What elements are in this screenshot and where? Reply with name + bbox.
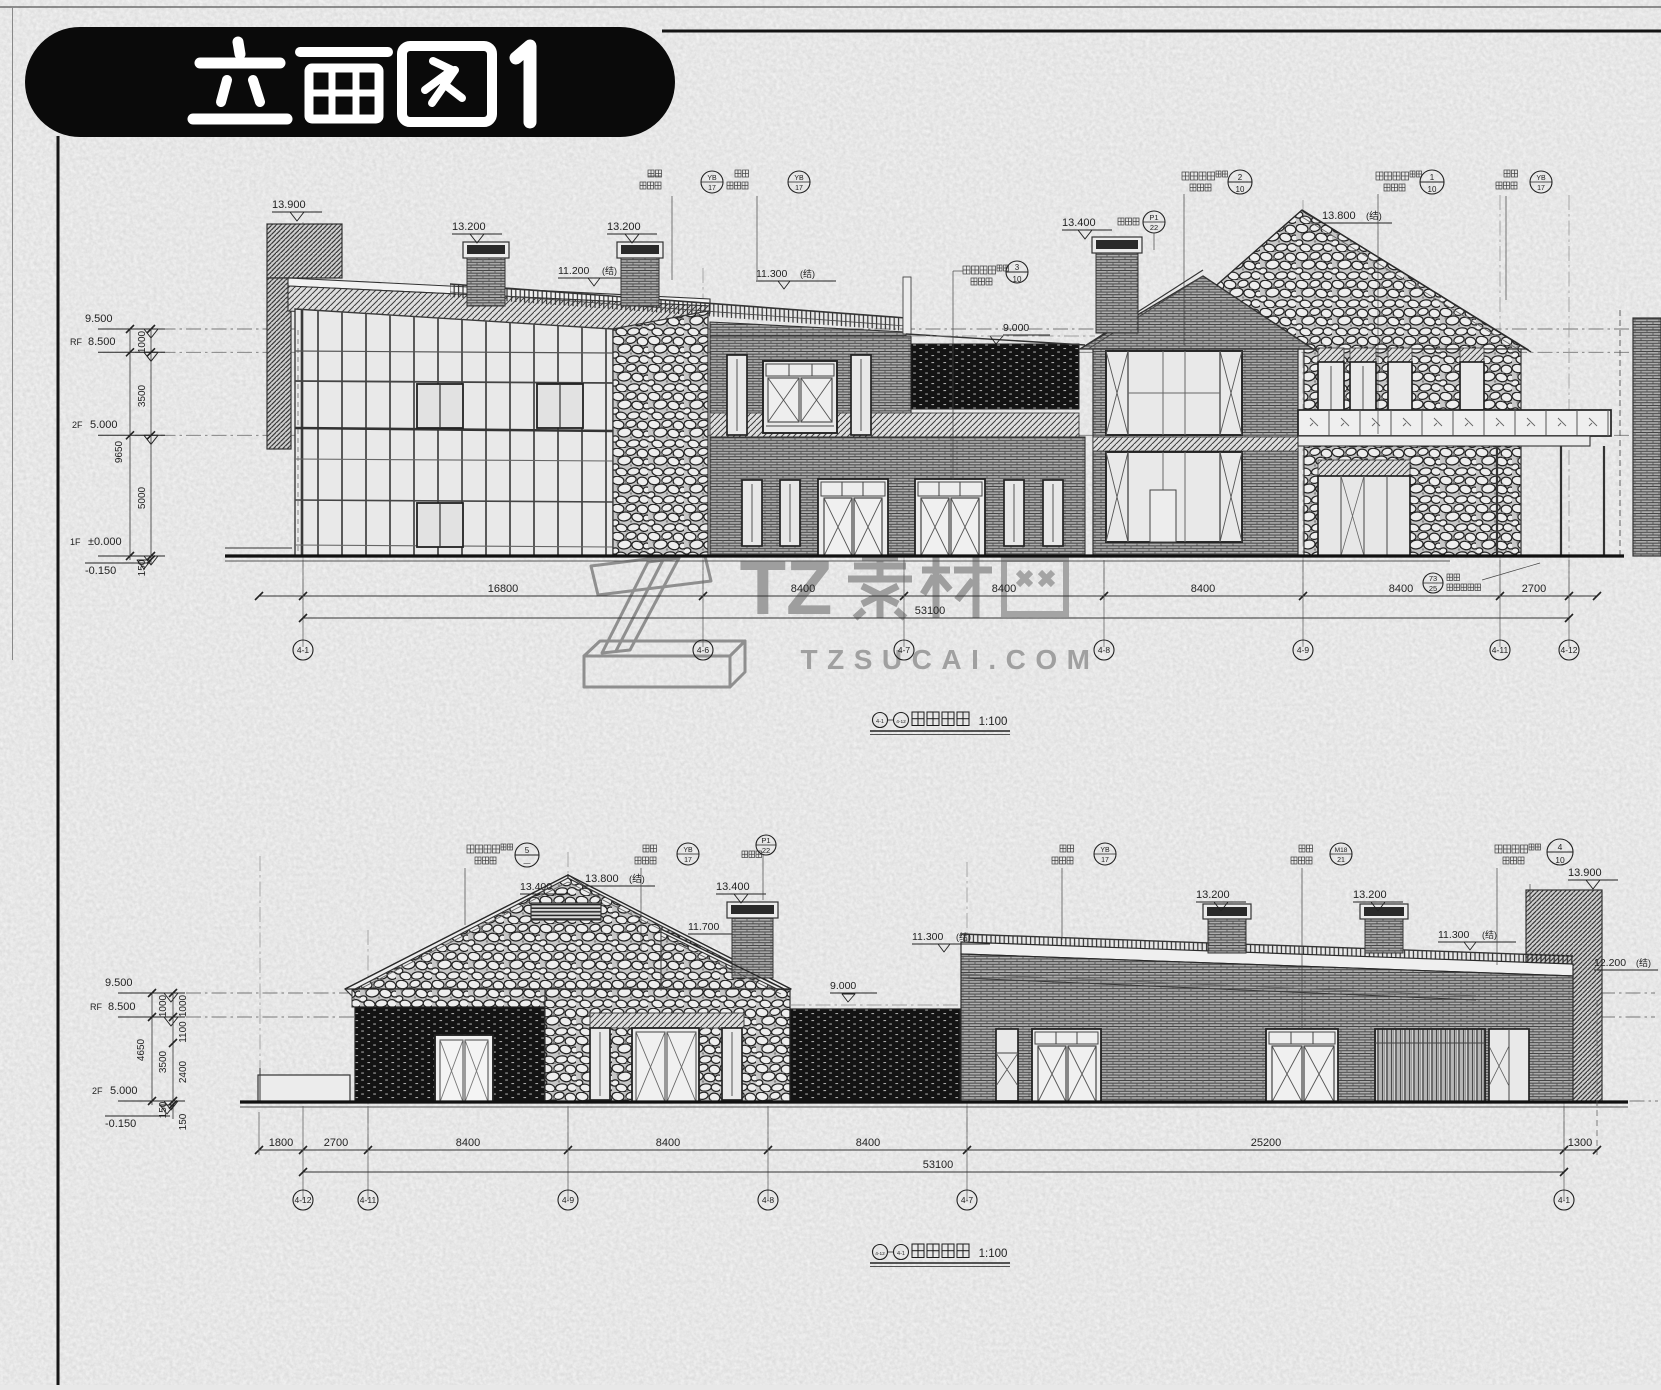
svg-text:4650: 4650: [136, 1038, 147, 1061]
svg-text:4-8: 4-8: [762, 1195, 775, 1205]
svg-text:3500: 3500: [158, 1050, 169, 1073]
svg-text:13.800: 13.800: [1322, 210, 1356, 222]
svg-text:3500: 3500: [137, 384, 148, 407]
svg-text:RF: RF: [90, 1002, 102, 1012]
svg-text:(结): (结): [956, 931, 971, 942]
svg-text:3: 3: [1015, 263, 1020, 272]
svg-text:1000: 1000: [158, 994, 169, 1017]
svg-text:4-12: 4-12: [1560, 645, 1577, 655]
svg-text:8400: 8400: [791, 583, 815, 595]
svg-text:13.900: 13.900: [1568, 867, 1602, 879]
svg-text:-0.150: -0.150: [85, 565, 116, 577]
svg-text:4: 4: [1558, 842, 1563, 852]
svg-text:4-6: 4-6: [697, 645, 710, 655]
svg-text:YB: YB: [1100, 847, 1110, 854]
svg-text:1:100: 1:100: [979, 1248, 1008, 1260]
svg-text:150: 150: [137, 559, 148, 576]
svg-text:5.000: 5.000: [110, 1085, 138, 1097]
svg-text:21: 21: [1337, 857, 1345, 864]
svg-text:13.200: 13.200: [607, 221, 641, 233]
svg-text:10: 10: [1236, 185, 1245, 194]
svg-text:9.000: 9.000: [830, 980, 856, 992]
svg-text:9650: 9650: [114, 440, 125, 463]
svg-text:8400: 8400: [456, 1137, 480, 1149]
svg-text:4-9: 4-9: [562, 1195, 575, 1205]
svg-text:9.500: 9.500: [105, 977, 133, 989]
svg-text:(结): (结): [1636, 957, 1651, 968]
svg-text:5.000: 5.000: [90, 419, 118, 431]
svg-text:8400: 8400: [992, 583, 1016, 595]
svg-text:17: 17: [708, 185, 716, 192]
svg-text:1100: 1100: [178, 1021, 189, 1043]
svg-text:17: 17: [1101, 857, 1109, 864]
svg-text:4-11: 4-11: [1492, 645, 1509, 655]
svg-text:10: 10: [1428, 185, 1437, 194]
svg-text:11.700: 11.700: [688, 921, 719, 933]
svg-text:53100: 53100: [915, 605, 946, 617]
svg-text:4-11: 4-11: [360, 1195, 377, 1205]
svg-text:1800: 1800: [269, 1137, 293, 1149]
svg-text:9.500: 9.500: [85, 313, 113, 325]
svg-text:—: —: [524, 860, 531, 867]
svg-text:8400: 8400: [1389, 583, 1413, 595]
svg-text:22: 22: [762, 846, 770, 855]
svg-text:12.200: 12.200: [1594, 957, 1626, 969]
svg-text:(结): (结): [800, 268, 815, 279]
svg-text:1000: 1000: [178, 994, 189, 1017]
svg-text:150: 150: [178, 1113, 189, 1130]
svg-text:(结): (结): [1482, 929, 1497, 940]
svg-text:10: 10: [1013, 275, 1022, 284]
svg-text:13.400: 13.400: [1062, 217, 1096, 229]
svg-text:17: 17: [684, 857, 692, 864]
svg-text:73: 73: [1429, 574, 1437, 583]
svg-text:2: 2: [1238, 173, 1243, 182]
svg-text:YB: YB: [707, 175, 717, 182]
svg-text:4-1: 4-1: [1558, 1195, 1571, 1205]
svg-text:(结): (结): [629, 873, 645, 885]
svg-text:2F: 2F: [92, 1086, 103, 1096]
svg-text:4-12: 4-12: [875, 1251, 885, 1257]
svg-text:TZSUCAI.COM: TZSUCAI.COM: [801, 644, 1100, 675]
svg-text:17: 17: [795, 185, 803, 192]
svg-text:8400: 8400: [1191, 583, 1215, 595]
svg-text:8.500: 8.500: [88, 336, 116, 348]
svg-text:4-1: 4-1: [897, 1251, 905, 1257]
svg-text:11.300: 11.300: [912, 931, 943, 943]
svg-text:13.900: 13.900: [272, 199, 306, 211]
svg-text:13.400: 13.400: [716, 881, 750, 893]
svg-text:4-1: 4-1: [297, 645, 310, 655]
svg-text:1000: 1000: [137, 330, 148, 353]
svg-text:11.300: 11.300: [756, 268, 787, 280]
svg-text:(结): (结): [602, 265, 617, 276]
svg-text:11.200: 11.200: [558, 265, 589, 277]
svg-text:53100: 53100: [923, 1159, 954, 1171]
svg-text:YB: YB: [683, 847, 693, 854]
svg-text:4-8: 4-8: [1098, 645, 1111, 655]
svg-text:8.500: 8.500: [108, 1001, 136, 1013]
svg-text:13.200: 13.200: [1196, 889, 1230, 901]
svg-text:13.200: 13.200: [452, 221, 486, 233]
svg-text:11.300: 11.300: [1438, 929, 1469, 941]
svg-text:1: 1: [1430, 173, 1435, 182]
svg-text:2700: 2700: [1522, 583, 1546, 595]
svg-text:2F: 2F: [72, 420, 83, 430]
svg-text:RF: RF: [70, 337, 82, 347]
svg-text:4-12: 4-12: [896, 719, 906, 725]
svg-text:150: 150: [158, 1101, 169, 1118]
svg-text:M18: M18: [1335, 847, 1348, 854]
svg-text:13.800: 13.800: [585, 873, 619, 885]
svg-text:4-7: 4-7: [898, 645, 911, 655]
svg-text:13.400: 13.400: [520, 881, 552, 893]
svg-text:5000: 5000: [137, 486, 148, 509]
svg-text:2700: 2700: [324, 1137, 348, 1149]
svg-text:22: 22: [1150, 223, 1158, 232]
svg-text:8400: 8400: [656, 1137, 680, 1149]
svg-text:P1: P1: [761, 836, 770, 845]
svg-text:P1: P1: [1149, 213, 1158, 222]
svg-text:4-12: 4-12: [294, 1195, 311, 1205]
svg-text:4-7: 4-7: [961, 1195, 974, 1205]
svg-text:1F: 1F: [70, 537, 81, 547]
svg-text:10: 10: [1555, 855, 1565, 865]
svg-text:YB: YB: [1536, 175, 1546, 182]
svg-text:1300: 1300: [1568, 1137, 1592, 1149]
svg-text:13.200: 13.200: [1353, 889, 1387, 901]
svg-text:16800: 16800: [488, 583, 519, 595]
svg-text:(结): (结): [1366, 210, 1382, 222]
svg-text:25: 25: [1429, 584, 1437, 593]
svg-text:±0.000: ±0.000: [88, 536, 122, 548]
svg-text:5: 5: [525, 846, 530, 855]
svg-text:4-9: 4-9: [1297, 645, 1310, 655]
svg-text:8400: 8400: [856, 1137, 880, 1149]
svg-text:17: 17: [1537, 185, 1545, 192]
svg-text:25200: 25200: [1251, 1137, 1282, 1149]
svg-text:4-1: 4-1: [876, 719, 884, 725]
svg-text:1:100: 1:100: [979, 716, 1008, 728]
svg-text:9.000: 9.000: [1003, 322, 1029, 334]
svg-text:-0.150: -0.150: [105, 1118, 136, 1130]
svg-text:YB: YB: [794, 175, 804, 182]
svg-text:2400: 2400: [178, 1060, 189, 1083]
